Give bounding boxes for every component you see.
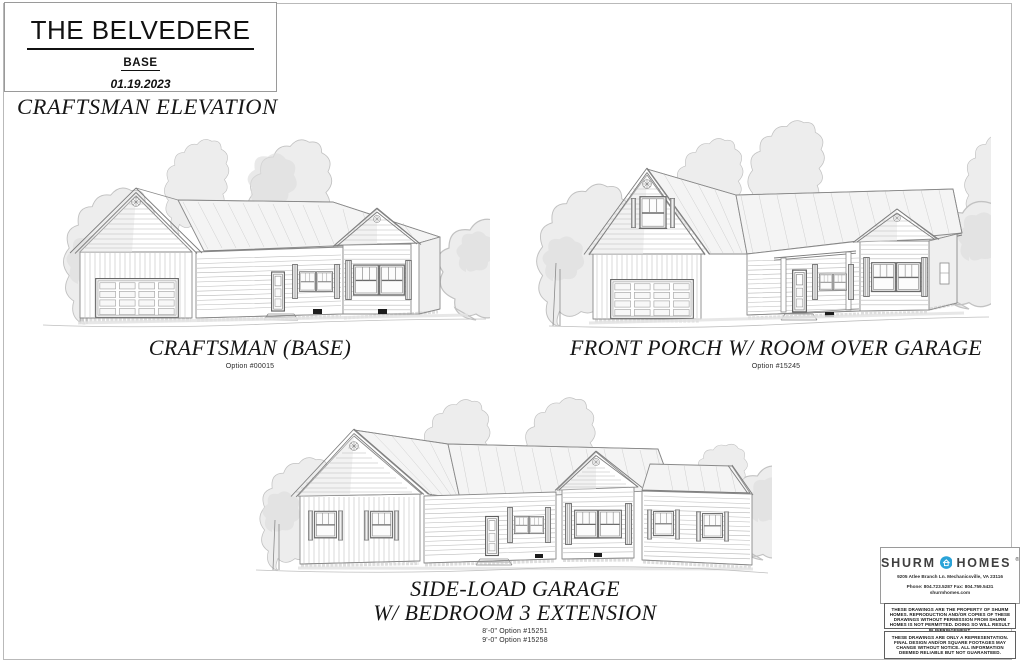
caption-option: Option #15245 [560, 363, 992, 372]
caption-options: 8'-0" Option #15251 9'-0" Option #15258 [315, 628, 715, 645]
caption-title: CRAFTSMAN (BASE) [90, 336, 410, 360]
elevation-drawing-craftsman-base [28, 112, 490, 340]
plan-subtitle: BASE [121, 57, 159, 71]
elevation-drawing-side-load-garage-bedroom3-extension [248, 392, 772, 588]
caption-option-1: 8'-0" Option #15251 [315, 628, 715, 637]
representation-disclaimer: THESE DRAWINGS ARE ONLY A REPRESENTATION… [884, 631, 1016, 659]
elevation-drawing-front-porch-room-over-garage [529, 111, 991, 341]
builder-website: shurmhomes.com [881, 590, 1019, 596]
home-icon [940, 555, 953, 570]
builder-address: 9205 Atlee Branch Ln. Mechanicsville, VA… [881, 574, 1019, 580]
plan-title: THE BELVEDERE [27, 15, 255, 50]
caption-front-porch: FRONT PORCH W/ ROOM OVER GARAGE Option #… [560, 336, 992, 372]
title-block: THE BELVEDERE BASE 01.19.2023 [4, 2, 277, 92]
builder-logo: SHURM HOMES ® [881, 555, 1019, 570]
caption-title: FRONT PORCH W/ ROOM OVER GARAGE [560, 336, 992, 360]
elevation-sheet: THE BELVEDERE BASE 01.19.2023 CRAFTSMAN … [0, 0, 1024, 663]
caption-option-2: 9'-0" Option #15258 [315, 637, 715, 646]
caption-option: Option #00015 [90, 363, 410, 372]
caption-side-load-garage: SIDE-LOAD GARAGE W/ BEDROOM 3 EXTENSION … [315, 577, 715, 645]
caption-title-line2: W/ BEDROOM 3 EXTENSION [315, 601, 715, 625]
logo-word-right: HOMES [956, 556, 1011, 570]
registered-mark: ® [1015, 557, 1019, 563]
caption-craftsman-base: CRAFTSMAN (BASE) Option #00015 [90, 336, 410, 372]
builder-logo-box: SHURM HOMES ® 9205 Atlee Branch Ln. Mech… [880, 547, 1020, 604]
copyright-disclaimer: THESE DRAWINGS ARE THE PROPERTY OF SHURM… [884, 603, 1016, 629]
logo-word-left: SHURM [881, 556, 936, 570]
plan-date: 01.19.2023 [5, 77, 276, 91]
caption-title-line1: SIDE-LOAD GARAGE [315, 577, 715, 601]
